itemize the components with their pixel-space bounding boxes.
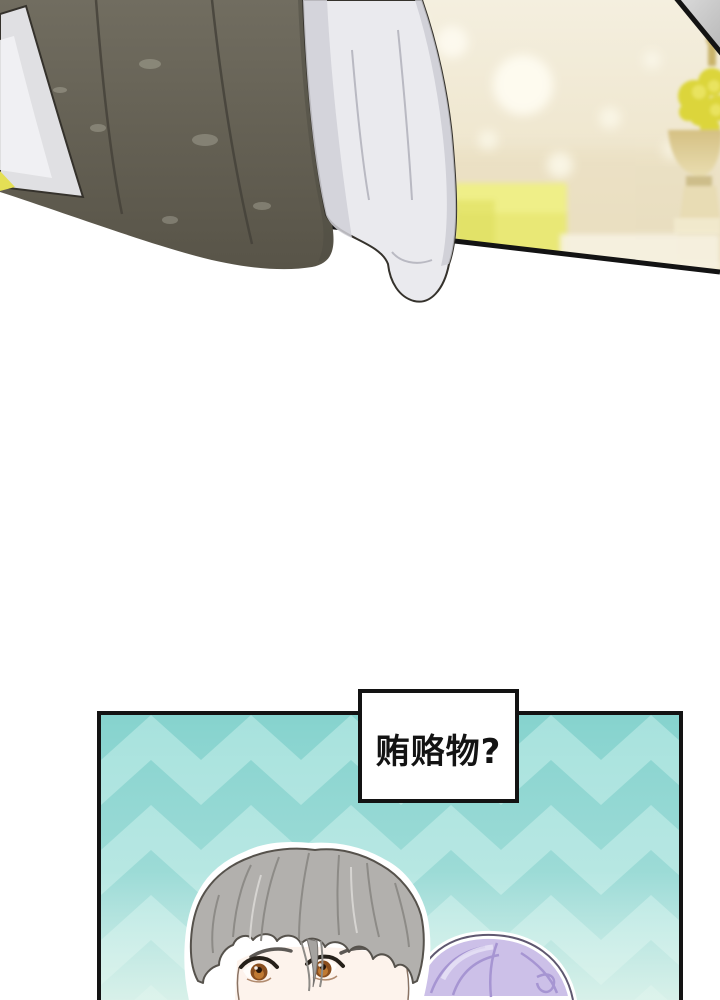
caption-box: 贿赂物? xyxy=(358,689,519,803)
comic-page: 贿赂物? xyxy=(0,0,720,1000)
panel-top-scene xyxy=(0,0,720,340)
panel-top-art xyxy=(0,0,720,340)
yellow-gift-box xyxy=(455,183,567,270)
gray-haired-character xyxy=(188,846,426,1000)
caption-text: 贿赂物? xyxy=(376,735,502,769)
